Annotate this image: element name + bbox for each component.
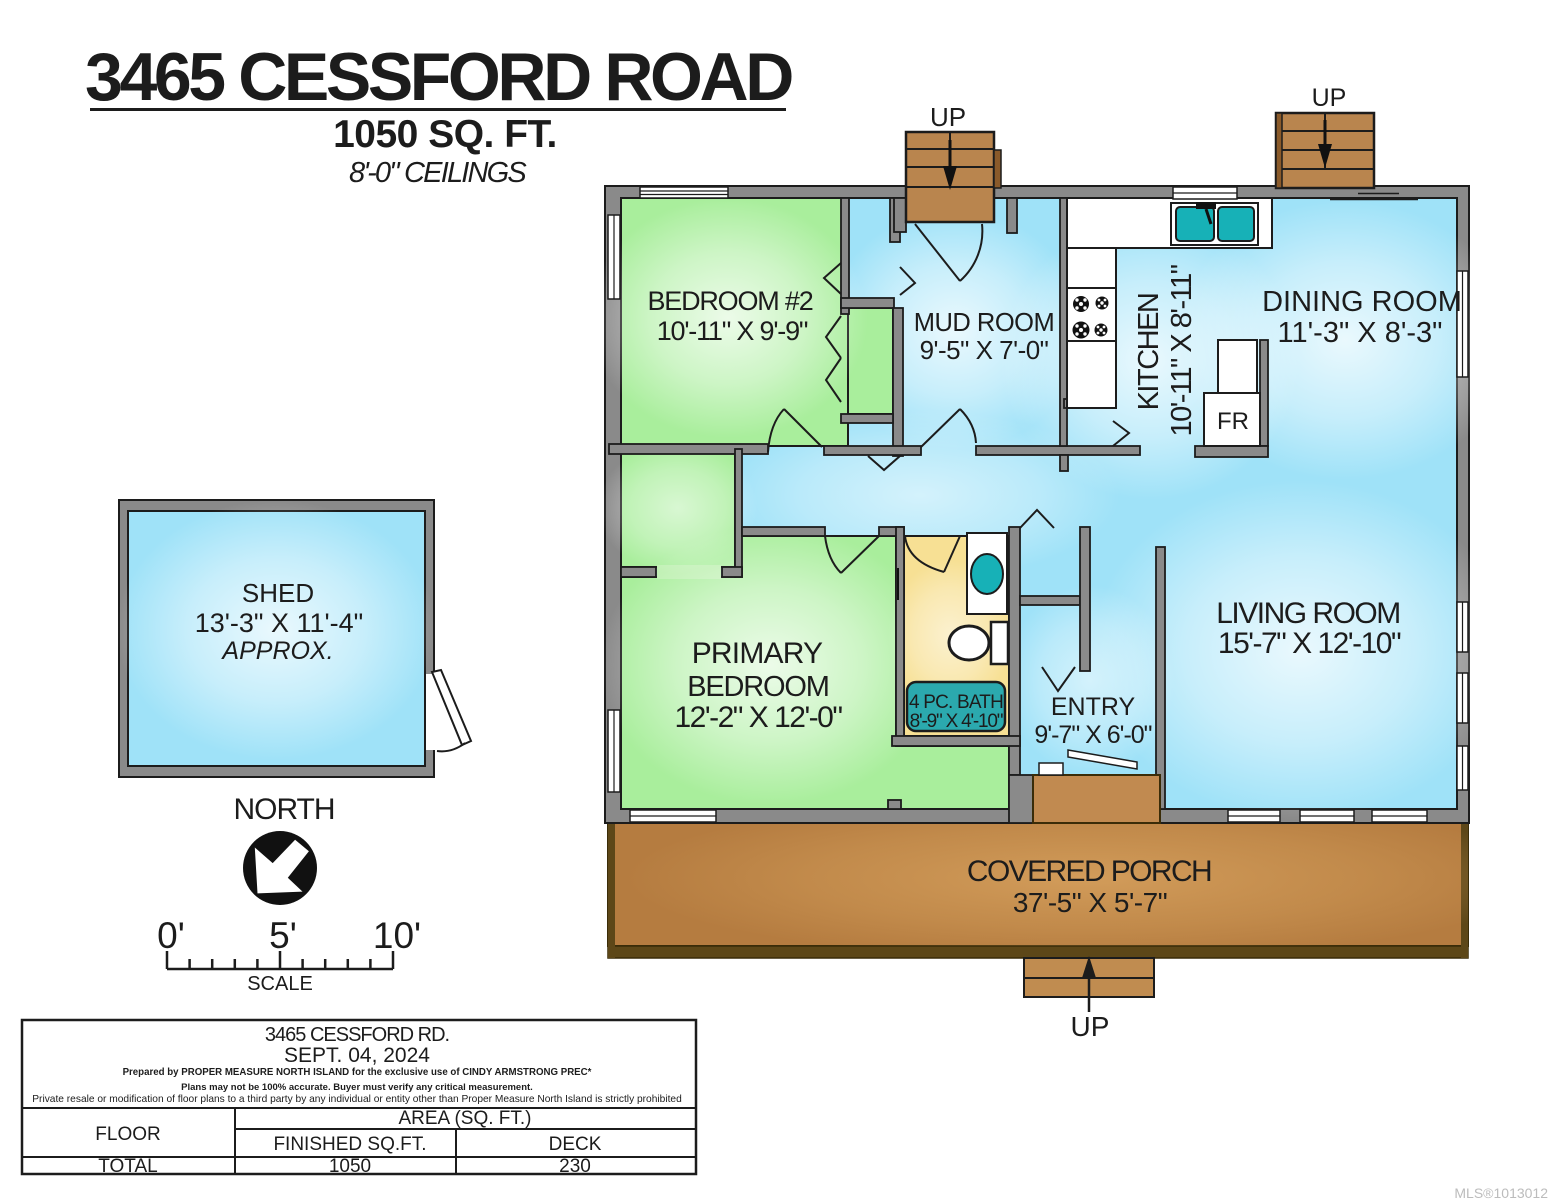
svg-text:MLS®1013012: MLS®1013012 (1454, 1185, 1548, 1200)
svg-text:13'-3" X 11'-4": 13'-3" X 11'-4" (195, 608, 364, 638)
svg-text:10'-11" X 8'-11": 10'-11" X 8'-11" (1166, 264, 1198, 436)
svg-text:3465 CESSFORD ROAD: 3465 CESSFORD ROAD (85, 39, 792, 115)
svg-text:DINING ROOM: DINING ROOM (1262, 286, 1462, 318)
svg-text:BEDROOM: BEDROOM (687, 671, 828, 703)
svg-text:10'-11" X 9'-9": 10'-11" X 9'-9" (657, 316, 808, 346)
svg-text:FR: FR (1217, 408, 1249, 435)
svg-text:8'-0" CEILINGS: 8'-0" CEILINGS (349, 157, 527, 189)
svg-text:1050 SQ. FT.: 1050 SQ. FT. (333, 113, 557, 156)
svg-text:SHED: SHED (242, 578, 314, 608)
svg-text:NORTH: NORTH (233, 793, 334, 826)
svg-text:SCALE: SCALE (247, 973, 313, 995)
svg-text:5': 5' (269, 915, 297, 956)
svg-text:UP: UP (1312, 84, 1347, 112)
svg-text:UP: UP (930, 102, 966, 132)
svg-text:4 PC. BATH: 4 PC. BATH (909, 692, 1003, 713)
svg-text:TOTAL: TOTAL (98, 1156, 157, 1177)
svg-text:230: 230 (559, 1156, 591, 1177)
svg-text:FLOOR: FLOOR (95, 1124, 160, 1145)
svg-text:9'-7" X 6'-0": 9'-7" X 6'-0" (1034, 721, 1151, 749)
svg-text:UP: UP (1071, 1011, 1110, 1042)
svg-text:LIVING ROOM: LIVING ROOM (1216, 597, 1400, 630)
svg-text:8'-9" X 4'-10": 8'-9" X 4'-10" (910, 711, 1003, 732)
svg-text:ENTRY: ENTRY (1051, 693, 1136, 721)
svg-text:KITCHEN: KITCHEN (1133, 294, 1165, 411)
svg-text:SEPT. 04, 2024: SEPT. 04, 2024 (284, 1044, 430, 1067)
svg-text:10': 10' (373, 915, 421, 956)
svg-text:9'-5" X 7'-0": 9'-5" X 7'-0" (920, 335, 1049, 365)
svg-text:11'-3" X 8'-3": 11'-3" X 8'-3" (1278, 317, 1443, 349)
svg-text:12'-2" X 12'-0": 12'-2" X 12'-0" (674, 701, 842, 734)
svg-text:3465 CESSFORD RD.: 3465 CESSFORD RD. (265, 1024, 449, 1046)
svg-text:APPROX.: APPROX. (220, 637, 333, 665)
svg-text:Plans may not be 100% accurate: Plans may not be 100% accurate. Buyer mu… (181, 1082, 533, 1093)
svg-text:COVERED PORCH: COVERED PORCH (967, 855, 1211, 888)
svg-text:AREA (SQ. FT.): AREA (SQ. FT.) (398, 1108, 531, 1129)
svg-text:DECK: DECK (549, 1134, 602, 1155)
svg-text:37'-5" X 5'-7": 37'-5" X 5'-7" (1013, 887, 1167, 918)
svg-text:1050: 1050 (329, 1156, 371, 1177)
svg-text:BEDROOM #2: BEDROOM #2 (647, 286, 812, 316)
svg-text:15'-7" X 12'-10": 15'-7" X 12'-10" (1218, 627, 1401, 660)
svg-text:Prepared by PROPER MEASURE NOR: Prepared by PROPER MEASURE NORTH ISLAND … (123, 1067, 592, 1078)
svg-text:0': 0' (157, 915, 185, 956)
svg-text:MUD ROOM: MUD ROOM (914, 309, 1054, 337)
svg-text:FINISHED SQ.FT.: FINISHED SQ.FT. (273, 1134, 426, 1155)
svg-text:PRIMARY: PRIMARY (692, 637, 823, 670)
svg-text:Private resale or modificatio: Private resale or modification of floor … (32, 1094, 682, 1105)
